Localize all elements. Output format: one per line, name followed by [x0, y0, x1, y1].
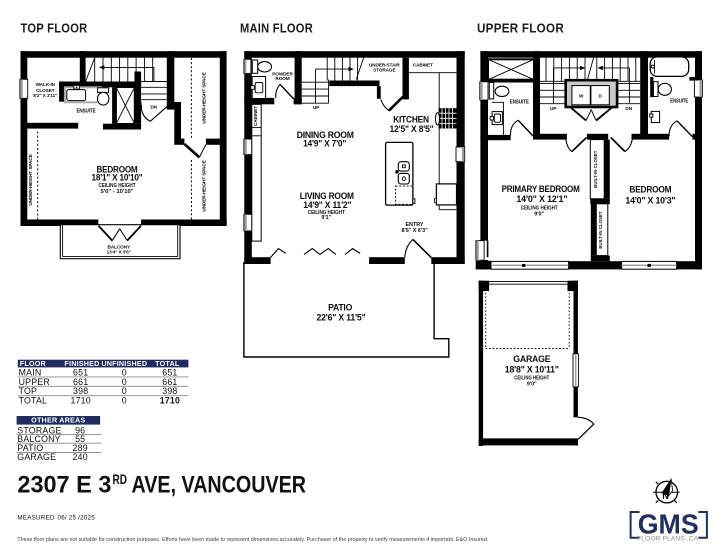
svg-text:MEASURED: MEASURED — [17, 515, 55, 522]
svg-text:GARAGE: GARAGE — [17, 452, 56, 462]
svg-text:2307 E 3: 2307 E 3 — [17, 471, 111, 498]
svg-text:18'1" X 10'10": 18'1" X 10'10" — [92, 172, 143, 183]
svg-text:N: N — [662, 491, 669, 501]
svg-text:TOTAL: TOTAL — [19, 396, 48, 406]
svg-text:RD: RD — [113, 471, 128, 487]
svg-text:UNDER-HEIGHT SPACE: UNDER-HEIGHT SPACE — [28, 154, 33, 205]
svg-text:1710: 1710 — [160, 396, 180, 406]
svg-text:0: 0 — [122, 396, 127, 406]
svg-text:MAIN FLOOR: MAIN FLOOR — [240, 20, 313, 35]
svg-text:ENSUITE: ENSUITE — [510, 100, 529, 106]
svg-text:These floor plans are not suit: These floor plans are not suitable for c… — [17, 537, 488, 543]
svg-text:DN: DN — [151, 104, 158, 109]
svg-text:14'0" X 10'3": 14'0" X 10'3" — [625, 194, 675, 205]
svg-text:CABINET: CABINET — [253, 106, 258, 126]
svg-text:UP: UP — [313, 105, 319, 110]
svg-text:BUILT-IN CLOSET: BUILT-IN CLOSET — [598, 211, 603, 249]
svg-text:TOP FLOOR: TOP FLOOR — [21, 20, 88, 35]
svg-text:9'1": 9'1" — [321, 215, 331, 221]
svg-text:BALCONY: BALCONY — [108, 244, 131, 249]
svg-text:UNDER-HEIGHT SPACE: UNDER-HEIGHT SPACE — [201, 72, 206, 123]
svg-text:ENSUITE: ENSUITE — [670, 99, 688, 105]
svg-text:WALK-IN: WALK-IN — [36, 82, 56, 87]
svg-text:8'2" X 3'11": 8'2" X 3'11" — [33, 93, 57, 98]
svg-text:1710: 1710 — [71, 396, 91, 406]
svg-text:OTHER AREAS: OTHER AREAS — [31, 416, 85, 425]
svg-text:ROOM: ROOM — [275, 76, 289, 81]
svg-text:ENSUITE: ENSUITE — [77, 109, 96, 115]
svg-text:BUILT-IN CLOSET: BUILT-IN CLOSET — [593, 150, 598, 188]
svg-text:DN: DN — [625, 106, 632, 111]
svg-text:14'0" X 12'1": 14'0" X 12'1" — [516, 193, 567, 204]
svg-text:9'0": 9'0" — [534, 211, 544, 217]
svg-text:UNDER-HEIGHT SPACE: UNDER-HEIGHT SPACE — [201, 160, 206, 211]
svg-text:18'8" X 10'11": 18'8" X 10'11" — [505, 364, 559, 375]
svg-text:13'4" X 3'6": 13'4" X 3'6" — [107, 250, 131, 255]
svg-text:CABINET: CABINET — [413, 63, 433, 68]
svg-text:W: W — [579, 93, 584, 98]
svg-text:CEILING HEIGHT: CEILING HEIGHT — [99, 183, 137, 189]
svg-text:06/ 25 /2025: 06/ 25 /2025 — [58, 515, 96, 522]
svg-text:12'5" X 8'5": 12'5" X 8'5" — [390, 123, 434, 134]
svg-text:UP: UP — [550, 106, 556, 111]
svg-text:UPPER FLOOR: UPPER FLOOR — [477, 20, 564, 35]
svg-text:FLOOR PLANS .CA: FLOOR PLANS .CA — [637, 536, 699, 543]
svg-text:STORAGE: STORAGE — [373, 67, 395, 72]
svg-text:14'9" X 7'0": 14'9" X 7'0" — [303, 138, 346, 149]
svg-text:8'5" X 6'3": 8'5" X 6'3" — [401, 228, 428, 234]
svg-text:9'0": 9'0" — [527, 382, 537, 388]
svg-text:240: 240 — [73, 452, 88, 462]
svg-text:ENTRY: ENTRY — [405, 222, 423, 228]
svg-text:22'6" X 11'5": 22'6" X 11'5" — [317, 311, 366, 322]
svg-text:5'0" - 10'10": 5'0" - 10'10" — [101, 189, 134, 195]
svg-text:AVE, VANCOUVER: AVE, VANCOUVER — [132, 471, 307, 498]
svg-text:14'9" X 11'2": 14'9" X 11'2" — [303, 199, 351, 210]
